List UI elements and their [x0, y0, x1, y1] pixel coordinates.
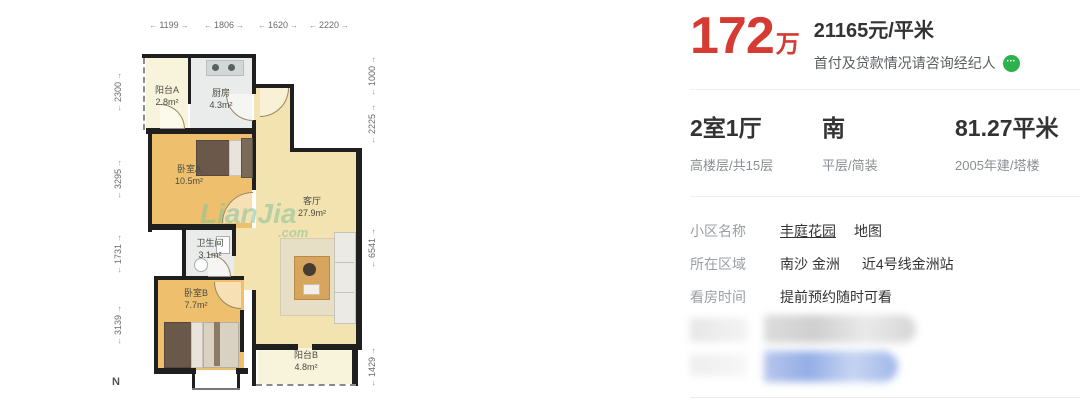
- consult-text: 首付及贷款情况请咨询经纪人: [814, 53, 996, 73]
- dim-top-2: 1806: [193, 20, 255, 30]
- room-label-bathroom: 卫生间 3.1m²: [186, 238, 234, 261]
- info-section: 小区名称 丰庭花园 地图 所在区域 南沙 金洲 近4号线金洲站 看房时间 提前预…: [690, 214, 1080, 313]
- wall: [352, 348, 358, 386]
- wardrobe-b-stripe: [214, 322, 220, 366]
- divider: [690, 89, 1080, 90]
- info-label: 看房时间: [690, 287, 762, 307]
- dim-top-4: 2220: [301, 20, 357, 30]
- subway-note: 近4号线金洲站: [862, 254, 954, 274]
- room-area: 3.1m²: [198, 250, 221, 260]
- visit-time-value: 提前预约随时可看: [780, 287, 892, 307]
- dim-value: 6541: [367, 238, 377, 258]
- wall: [290, 88, 294, 148]
- dim-right-3: 6541: [367, 203, 377, 293]
- sofa: [334, 232, 356, 324]
- price-unit: 万: [776, 24, 800, 59]
- layout-value: 2室1厅: [690, 109, 822, 143]
- floorplan-image[interactable]: 阳台A 2.8m² 厨房 4.3m² 卧室A 10.5m² 客厅 27.9m² …: [0, 0, 680, 403]
- dim-left-2: 3295: [113, 139, 123, 219]
- wall: [356, 148, 362, 350]
- room-area: 7.7m²: [184, 300, 207, 310]
- info-row-district: 所在区域 南沙 金洲 近4号线金洲站: [690, 247, 1080, 280]
- room-name: 卧室B: [184, 288, 208, 298]
- balcony-a-window: [143, 58, 145, 130]
- dim-value: 3295: [113, 169, 123, 189]
- wardrobe-b: [203, 322, 239, 368]
- sofa-cushion-line: [334, 292, 354, 293]
- dim-value: 1806: [214, 20, 234, 30]
- wall: [290, 148, 360, 152]
- dim-value: 1731: [113, 244, 123, 264]
- area-sub: 2005年建/塔楼: [955, 155, 1080, 174]
- redacted-label: [690, 354, 748, 376]
- dim-left-4: 3139: [113, 286, 123, 364]
- dim-value: 1429: [367, 357, 377, 377]
- price-meta: 21165元/平米 首付及贷款情况请咨询经纪人: [814, 12, 1020, 73]
- dim-right-2: 2225: [367, 101, 377, 147]
- map-link[interactable]: 地图: [854, 221, 882, 241]
- info-row-community: 小区名称 丰庭花园 地图: [690, 214, 1080, 247]
- summary-orientation: 南 平层/简装: [822, 109, 955, 174]
- dim-value: 1000: [367, 66, 377, 86]
- chat-bubble-icon[interactable]: [1003, 55, 1020, 72]
- wall: [148, 128, 152, 232]
- room-name: 阳台A: [155, 85, 179, 95]
- room-label-balcony-a: 阳台A 2.8m²: [146, 85, 188, 108]
- redacted-agent-link[interactable]: [764, 351, 898, 382]
- table-tray: [303, 284, 320, 295]
- info-label: 所在区域: [690, 254, 762, 274]
- dim-value: 1620: [268, 20, 288, 30]
- orientation-sub: 平层/简装: [822, 155, 955, 174]
- dim-value: 2300: [113, 82, 123, 102]
- room-name: 阳台B: [294, 350, 318, 360]
- room-label-kitchen: 厨房 4.3m²: [192, 88, 250, 111]
- summary-area: 81.27平米 2005年建/塔楼: [955, 109, 1080, 174]
- room-area: 4.3m²: [209, 100, 232, 110]
- wall: [252, 348, 256, 386]
- balcony-b-window: [256, 382, 356, 386]
- wall: [154, 276, 158, 372]
- dim-value: 2225: [367, 114, 377, 134]
- listing-detail-panel: 172 万 21165元/平米 首付及贷款情况请咨询经纪人 2室1厅 高楼层/共…: [690, 0, 1080, 403]
- lianjia-watermark: LianJia .com: [200, 200, 308, 239]
- room-area: 10.5m²: [175, 176, 203, 186]
- wall: [190, 54, 256, 58]
- stove-burner: [212, 64, 219, 71]
- dim-top-1: 1199: [147, 20, 191, 30]
- room-label-bedroom-a: 卧室A 10.5m²: [156, 164, 222, 187]
- wall: [252, 54, 256, 94]
- total-price: 172 万: [690, 12, 800, 61]
- compass-north: N: [112, 376, 120, 388]
- room-area: 2.8m²: [155, 97, 178, 107]
- dim-value: 2220: [319, 20, 339, 30]
- summary-layout: 2室1厅 高楼层/共15层: [690, 109, 822, 174]
- room-area: 4.8m²: [294, 362, 317, 372]
- room-label-balcony-b: 阳台B 4.8m²: [266, 350, 346, 373]
- wardrobe-a: [241, 138, 253, 178]
- info-row-visit-time: 看房时间 提前预约随时可看: [690, 280, 1080, 313]
- table-kettle: [303, 263, 316, 276]
- divider: [690, 196, 1080, 197]
- bed-b-pillows: [191, 322, 203, 368]
- layout-sub: 高楼层/共15层: [690, 155, 822, 174]
- wall: [154, 368, 196, 374]
- area-value: 81.27平米: [955, 109, 1080, 143]
- community-link[interactable]: 丰庭花园: [780, 221, 836, 241]
- room-name: 卧室A: [177, 164, 201, 174]
- room-label-bedroom-b: 卧室B 7.7m²: [166, 288, 226, 311]
- room-name: 厨房: [212, 88, 230, 98]
- dim-value: 3139: [113, 315, 123, 335]
- wall: [188, 56, 191, 104]
- dim-value: 1199: [159, 20, 178, 30]
- wall: [240, 310, 244, 352]
- room-name: 卫生间: [196, 238, 223, 248]
- dim-right-1: 1000: [367, 56, 377, 96]
- district-value: 南沙 金洲: [780, 254, 840, 274]
- consult-row: 首付及贷款情况请咨询经纪人: [814, 53, 1020, 73]
- redacted-value: [764, 315, 916, 343]
- watermark-text: .com: [278, 226, 308, 239]
- listing-page: 阳台A 2.8m² 厨房 4.3m² 卧室A 10.5m² 客厅 27.9m² …: [0, 0, 1080, 403]
- price-section: 172 万 21165元/平米 首付及贷款情况请咨询经纪人: [690, 12, 1020, 73]
- wall: [252, 290, 256, 352]
- stove-burner: [228, 64, 235, 71]
- dim-left-3: 1731: [113, 232, 123, 276]
- summary-section: 2室1厅 高楼层/共15层 南 平层/简装 81.27平米 2005年建/塔楼: [690, 109, 1080, 174]
- info-label: 小区名称: [690, 221, 762, 241]
- sofa-cushion-line: [334, 262, 354, 263]
- dim-right-4: 1429: [367, 348, 377, 386]
- unit-price: 21165元/平米: [814, 14, 1020, 43]
- dim-left-1: 2300: [113, 62, 123, 122]
- divider: [690, 397, 1080, 398]
- bed-b: [164, 322, 192, 368]
- orientation-value: 南: [822, 109, 955, 143]
- dim-top-3: 1620: [257, 20, 299, 30]
- bay-window-sill: [192, 388, 240, 390]
- redacted-label: [690, 318, 748, 342]
- price-amount: 172: [690, 12, 774, 61]
